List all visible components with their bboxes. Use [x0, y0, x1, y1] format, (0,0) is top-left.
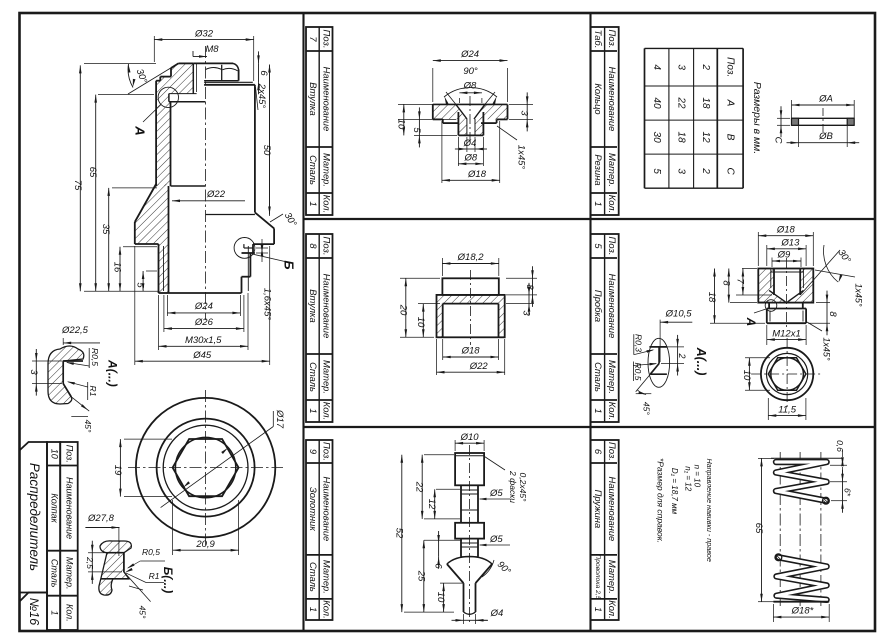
svg-text:Сталь: Сталь [308, 155, 319, 185]
svg-text:Пробка: Пробка [593, 290, 604, 322]
svg-text:Направление навивки - правое: Направление навивки - правое [705, 459, 714, 562]
svg-text:А(...): А(...) [106, 359, 120, 387]
svg-text:Кольцо: Кольцо [593, 83, 604, 114]
svg-text:Кол.: Кол. [321, 195, 332, 213]
svg-text:Размеры в мм.: Размеры в мм. [751, 82, 763, 155]
svg-text:Ø10,5: Ø10,5 [665, 309, 693, 320]
svg-text:Ø13: Ø13 [780, 238, 800, 249]
svg-text:52: 52 [393, 528, 404, 539]
svg-text:40: 40 [651, 97, 662, 109]
svg-text:2,5: 2,5 [85, 556, 95, 569]
svg-text:3: 3 [676, 64, 687, 70]
svg-text:Б: Б [282, 260, 297, 269]
svg-text:2: 2 [700, 167, 711, 174]
svg-text:Проволока 2,5: Проволока 2,5 [594, 554, 601, 600]
svg-text:1: 1 [308, 201, 319, 206]
svg-text:Матер.: Матер. [607, 360, 618, 394]
svg-text:2 фаски: 2 фаски [508, 470, 518, 503]
svg-text:Втулка: Втулка [308, 289, 319, 322]
svg-text:Матер.: Матер. [65, 557, 75, 590]
svg-text:1: 1 [593, 201, 604, 206]
svg-text:Таб.: Таб. [593, 30, 604, 49]
svg-text:n₁ = 12: n₁ = 12 [683, 466, 692, 492]
svg-text:Матер.: Матер. [607, 153, 618, 187]
svg-text:18: 18 [700, 97, 711, 109]
svg-text:1x45°: 1x45° [854, 283, 864, 307]
svg-text:Поз.: Поз. [607, 442, 618, 461]
svg-text:Кол.: Кол. [607, 402, 618, 420]
svg-text:Ø27,8: Ø27,8 [87, 513, 115, 524]
svg-text:Поз.: Поз. [607, 30, 618, 49]
svg-text:45°: 45° [83, 420, 93, 433]
svg-text:Наименование: Наименование [321, 67, 332, 132]
svg-text:R1: R1 [149, 571, 160, 581]
svg-text:Ø5: Ø5 [489, 534, 503, 545]
svg-text:65: 65 [753, 523, 764, 534]
svg-text:R1: R1 [88, 386, 98, 397]
svg-text:4: 4 [651, 64, 662, 70]
svg-text:А: А [744, 317, 758, 327]
svg-text:Сталь: Сталь [593, 362, 604, 392]
svg-text:Ø8: Ø8 [463, 81, 477, 92]
svg-text:45°: 45° [641, 402, 651, 415]
svg-text:20,9: 20,9 [195, 539, 215, 550]
svg-text:Ø24: Ø24 [194, 301, 213, 312]
svg-text:Поз.: Поз. [725, 57, 736, 77]
svg-text:Кол.: Кол. [607, 600, 618, 618]
svg-text:Втулка: Втулка [308, 82, 319, 115]
svg-text:Ø45: Ø45 [192, 350, 212, 361]
svg-text:R0,3: R0,3 [634, 334, 644, 352]
svg-text:3: 3 [676, 168, 687, 174]
svg-text:1x45°: 1x45° [822, 337, 832, 361]
svg-text:10: 10 [415, 317, 426, 328]
svg-text:11,5: 11,5 [778, 405, 797, 416]
svg-text:Поз.: Поз. [607, 237, 618, 256]
svg-text:1: 1 [593, 408, 604, 413]
svg-text:Ø24: Ø24 [460, 49, 479, 60]
svg-text:Кол.: Кол. [321, 402, 332, 420]
svg-text:Матер.: Матер. [321, 153, 332, 187]
svg-text:9: 9 [308, 449, 319, 455]
svg-text:2: 2 [700, 63, 711, 70]
svg-text:22: 22 [414, 481, 425, 493]
svg-text:22: 22 [676, 96, 687, 109]
svg-text:7: 7 [734, 278, 745, 284]
svg-text:*Размер для справок.: *Размер для справок. [655, 458, 665, 543]
svg-text:Матер.: Матер. [321, 360, 332, 394]
svg-text:50: 50 [261, 145, 272, 156]
svg-text:В: В [725, 134, 736, 141]
svg-text:№16: №16 [27, 598, 41, 625]
svg-text:8: 8 [720, 280, 731, 286]
svg-text:Пружина: Пружина [593, 490, 604, 529]
svg-text:M8: M8 [205, 44, 219, 55]
svg-text:2: 2 [677, 352, 687, 358]
svg-text:6: 6 [593, 449, 604, 455]
svg-text:Ø26: Ø26 [194, 317, 214, 328]
svg-text:12: 12 [426, 499, 437, 510]
svg-text:Ø18: Ø18 [461, 346, 481, 357]
svg-text:12: 12 [700, 132, 711, 144]
svg-text:45°: 45° [138, 606, 148, 619]
svg-text:10: 10 [395, 119, 406, 130]
svg-text:5: 5 [651, 168, 662, 174]
svg-text:65: 65 [87, 167, 98, 178]
svg-text:6: 6 [258, 70, 269, 76]
svg-text:6*: 6* [842, 488, 852, 497]
svg-text:5: 5 [411, 127, 422, 133]
svg-text:Ø22: Ø22 [206, 189, 226, 200]
svg-text:Наименование: Наименование [321, 477, 332, 542]
svg-text:20: 20 [397, 304, 408, 316]
svg-text:ØВ: ØВ [818, 131, 833, 142]
svg-text:0,6: 0,6 [835, 440, 845, 452]
svg-text:10: 10 [435, 592, 446, 603]
svg-text:8: 8 [827, 311, 838, 317]
svg-text:Б(...): Б(...) [161, 567, 175, 594]
svg-text:10: 10 [741, 370, 752, 381]
svg-text:Резина: Резина [593, 154, 604, 185]
svg-text:Сталь: Сталь [308, 362, 319, 392]
svg-text:Ø18*: Ø18* [791, 606, 814, 617]
svg-text:35: 35 [100, 224, 111, 235]
svg-text:Ø22: Ø22 [469, 361, 489, 372]
svg-text:90°: 90° [463, 66, 478, 77]
svg-text:Кол.: Кол. [65, 604, 75, 622]
svg-text:Наименование: Наименование [607, 274, 618, 339]
svg-text:1: 1 [308, 408, 319, 413]
svg-text:А(...): А(...) [694, 347, 708, 376]
svg-text:Ø5: Ø5 [489, 488, 503, 499]
svg-text:6: 6 [433, 563, 444, 569]
svg-text:Ø18: Ø18 [776, 225, 796, 236]
svg-text:1: 1 [49, 610, 59, 615]
svg-text:19: 19 [112, 465, 123, 476]
svg-text:Ø22,5: Ø22,5 [61, 325, 89, 336]
svg-text:75: 75 [72, 180, 83, 191]
svg-text:Ø4: Ø4 [463, 138, 477, 149]
svg-text:С: С [725, 167, 736, 175]
svg-text:Наименование: Наименование [607, 67, 618, 132]
svg-text:Наименование: Наименование [607, 477, 618, 542]
svg-text:D₁ = 18,7 мм: D₁ = 18,7 мм [670, 468, 679, 515]
svg-text:Сталь: Сталь [308, 562, 319, 592]
svg-text:Матер.: Матер. [607, 560, 618, 594]
svg-text:ØА: ØА [818, 94, 833, 105]
svg-text:R0,5: R0,5 [90, 348, 100, 366]
svg-text:18: 18 [706, 292, 717, 303]
svg-text:Ø18,2: Ø18,2 [457, 252, 485, 263]
svg-text:1: 1 [308, 607, 319, 612]
svg-text:8: 8 [308, 243, 319, 249]
svg-text:n = 10: n = 10 [692, 465, 701, 488]
svg-text:M12x1: M12x1 [772, 329, 801, 340]
svg-text:С: С [773, 137, 784, 144]
svg-text:Поз.: Поз. [65, 445, 75, 463]
svg-text:Кол.: Кол. [607, 195, 618, 213]
svg-text:16: 16 [112, 262, 123, 273]
svg-text:Ø4: Ø4 [490, 608, 504, 619]
svg-text:Ø32: Ø32 [194, 29, 214, 40]
svg-text:Поз.: Поз. [321, 30, 332, 49]
svg-text:0,2x45°: 0,2x45° [518, 473, 528, 503]
svg-text:Колпак: Колпак [49, 493, 59, 523]
svg-text:30: 30 [651, 132, 662, 144]
svg-text:3: 3 [519, 110, 530, 116]
svg-text:R0,5: R0,5 [142, 547, 160, 557]
svg-text:Ø17: Ø17 [274, 409, 285, 429]
svg-text:M30x1,5: M30x1,5 [185, 335, 222, 346]
svg-text:А: А [133, 125, 148, 135]
svg-text:3: 3 [28, 369, 39, 375]
svg-text:25: 25 [415, 570, 426, 582]
svg-text:Распределитель: Распределитель [27, 463, 42, 571]
svg-text:Наименование: Наименование [321, 274, 332, 339]
svg-text:Ø9: Ø9 [777, 250, 791, 261]
svg-text:Матер.: Матер. [321, 560, 332, 594]
svg-text:10: 10 [49, 449, 59, 459]
svg-text:7: 7 [308, 36, 319, 42]
svg-text:1x45°: 1x45° [516, 145, 527, 170]
svg-text:1,6x45°: 1,6x45° [262, 288, 273, 321]
svg-text:Ø18: Ø18 [467, 169, 487, 180]
svg-text:Золотник: Золотник [308, 487, 319, 531]
svg-text:3: 3 [521, 310, 532, 316]
svg-text:Наименование: Наименование [65, 477, 75, 539]
svg-text:Кол.: Кол. [321, 600, 332, 618]
svg-text:Ø10: Ø10 [460, 432, 480, 443]
svg-text:5: 5 [593, 243, 604, 249]
svg-text:18: 18 [676, 132, 687, 144]
svg-text:Ø8: Ø8 [464, 153, 478, 164]
svg-text:А: А [725, 99, 736, 107]
svg-text:1: 1 [593, 607, 604, 612]
svg-text:5: 5 [135, 282, 146, 288]
svg-text:Поз.: Поз. [321, 237, 332, 256]
svg-text:Поз.: Поз. [321, 442, 332, 461]
svg-text:Сталь: Сталь [49, 559, 59, 588]
